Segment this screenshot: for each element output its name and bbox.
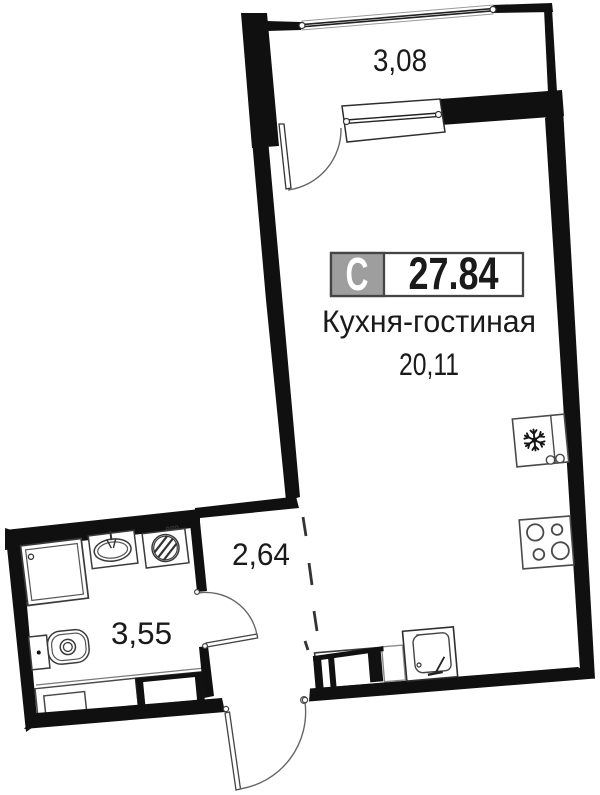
svg-text:С: С xyxy=(346,248,369,300)
svg-text:2,64: 2,64 xyxy=(232,536,290,572)
svg-text:Кухня-гостиная: Кухня-гостиная xyxy=(322,303,536,339)
svg-text:20,11: 20,11 xyxy=(399,346,459,382)
svg-text:27.84: 27.84 xyxy=(409,248,499,299)
svg-text:3,55: 3,55 xyxy=(111,615,172,651)
svg-text:3,08: 3,08 xyxy=(373,42,427,78)
